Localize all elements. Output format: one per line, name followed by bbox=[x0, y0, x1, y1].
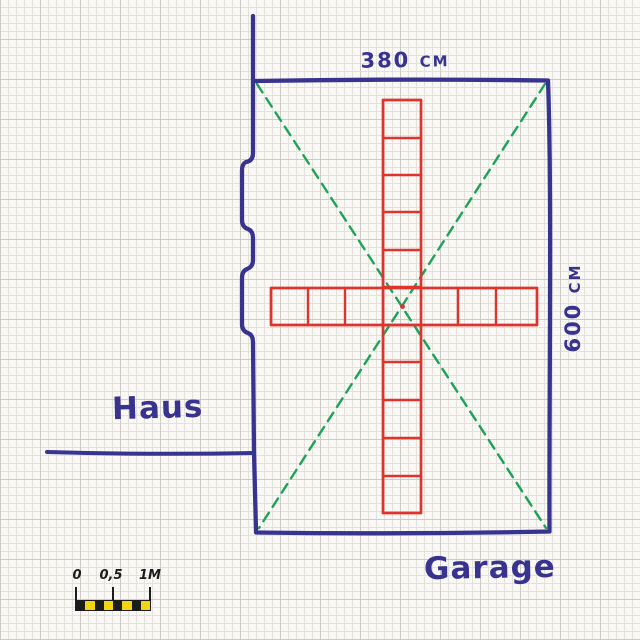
scale-segment bbox=[141, 601, 150, 610]
center-point-dot bbox=[400, 304, 405, 309]
scale-segment bbox=[85, 601, 94, 610]
scale-segment bbox=[104, 601, 113, 610]
scale-label-zero: 0 bbox=[72, 568, 81, 583]
scale-label-half: 0,5 bbox=[99, 568, 122, 583]
scale-bar: 0 0,5 1M bbox=[60, 568, 170, 616]
scale-tick-zero bbox=[75, 587, 77, 600]
scale-bar-strip bbox=[75, 600, 151, 611]
scale-label-one-meter: 1M bbox=[139, 568, 161, 583]
scale-segment bbox=[76, 601, 85, 610]
house-side-line bbox=[47, 452, 254, 454]
scale-tick-one bbox=[149, 587, 151, 600]
house-wall bbox=[47, 16, 256, 531]
scale-segment bbox=[95, 601, 104, 610]
sketch-drawing bbox=[0, 0, 640, 640]
graph-paper-canvas: Haus Garage 380 cm 600 cm 0 0,5 1M bbox=[0, 0, 640, 640]
haus-label: Haus bbox=[112, 389, 204, 427]
scale-segment bbox=[113, 601, 122, 610]
width-dimension-label: 380 cm bbox=[360, 47, 450, 73]
scale-tick-half bbox=[112, 587, 114, 600]
garage-label: Garage bbox=[424, 549, 556, 587]
tile-cross bbox=[271, 100, 537, 513]
scale-segment bbox=[122, 601, 131, 610]
height-dimension-label: 600 cm bbox=[561, 253, 585, 363]
scale-segment bbox=[132, 601, 141, 610]
